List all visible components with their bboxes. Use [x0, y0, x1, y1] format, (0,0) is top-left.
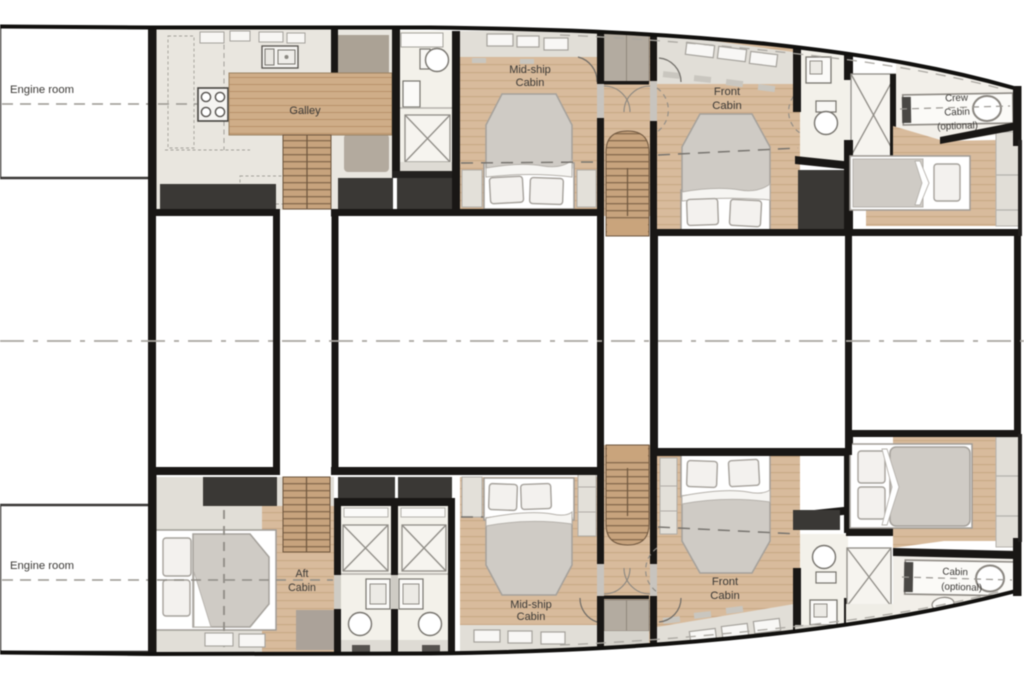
svg-text:(optional): (optional) — [941, 581, 982, 593]
svg-text:Mid-ship: Mid-ship — [510, 599, 552, 611]
svg-text:Cabin: Cabin — [942, 566, 968, 578]
svg-text:Cabin: Cabin — [517, 611, 546, 623]
svg-text:Engine room: Engine room — [10, 84, 74, 96]
svg-text:Galley: Galley — [289, 105, 321, 117]
svg-text:Cabin: Cabin — [710, 590, 740, 602]
svg-text:Mid-ship: Mid-ship — [509, 64, 551, 76]
svg-text:Aft: Aft — [296, 568, 309, 580]
svg-text:Crew: Crew — [945, 93, 969, 105]
svg-text:Cabin: Cabin — [288, 582, 316, 594]
svg-text:Cabin: Cabin — [712, 100, 742, 112]
svg-text:Cabin: Cabin — [944, 107, 970, 119]
svg-text:Engine room: Engine room — [10, 560, 74, 572]
svg-text:Front: Front — [714, 86, 741, 98]
svg-text:Cabin: Cabin — [516, 77, 545, 89]
svg-text:Front: Front — [712, 576, 739, 588]
